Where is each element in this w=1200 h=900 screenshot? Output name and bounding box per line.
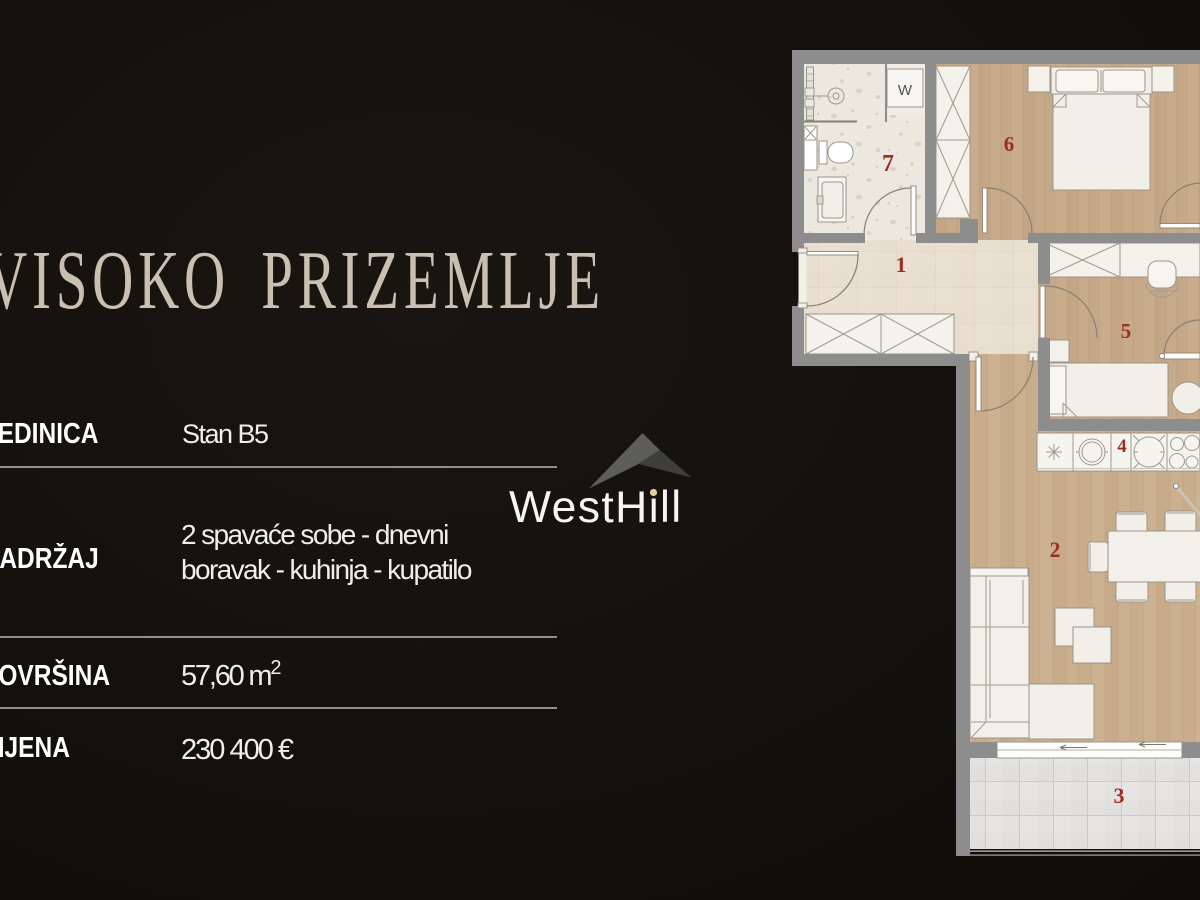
svg-text:5: 5 bbox=[1121, 319, 1132, 343]
svg-text:7: 7 bbox=[882, 151, 894, 177]
svg-text:3: 3 bbox=[1114, 783, 1125, 808]
svg-text:W: W bbox=[898, 82, 913, 99]
svg-text:4: 4 bbox=[1117, 436, 1127, 457]
svg-text:1: 1 bbox=[896, 252, 907, 277]
svg-text:6: 6 bbox=[1004, 132, 1015, 156]
svg-text:2: 2 bbox=[1050, 537, 1061, 562]
